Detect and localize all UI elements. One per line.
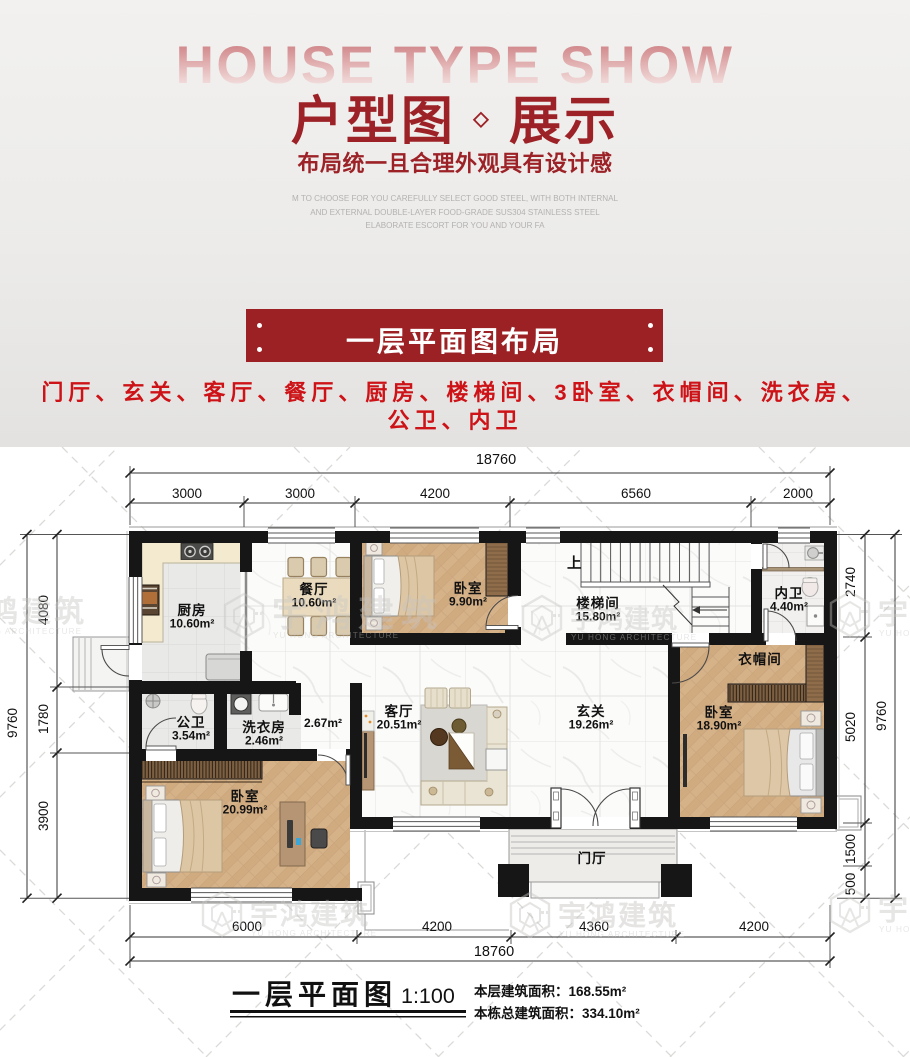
- svg-text:4200: 4200: [422, 919, 452, 934]
- svg-text:10.60m²: 10.60m²: [170, 617, 215, 631]
- svg-text:1780: 1780: [36, 704, 51, 734]
- svg-text:1:100: 1:100: [401, 984, 455, 1008]
- svg-text:宇鸿建筑: 宇鸿建筑: [570, 604, 678, 634]
- svg-text:YU HONG ARCHITECTURE: YU HONG ARCHITECTURE: [879, 629, 910, 638]
- svg-text:宇鸿建筑: 宇鸿建筑: [878, 893, 910, 927]
- svg-text:3000: 3000: [285, 486, 315, 501]
- svg-text:衣帽间: 衣帽间: [738, 651, 782, 667]
- svg-text:宇鸿建筑: 宇鸿建筑: [272, 593, 444, 634]
- svg-text:YU HONG ARCHITECTURE: YU HONG ARCHITECTURE: [879, 925, 910, 934]
- svg-text:3000: 3000: [172, 486, 202, 501]
- svg-text:宇鸿建筑: 宇鸿建筑: [250, 899, 370, 930]
- svg-text:YU HONG ARCHITECTURE: YU HONG ARCHITECTURE: [251, 929, 377, 938]
- svg-text:3900: 3900: [36, 801, 51, 831]
- svg-text:9760: 9760: [5, 708, 20, 738]
- svg-text:YU HONG ARCHITECTURE: YU HONG ARCHITECTURE: [273, 631, 399, 640]
- svg-text:本栋总建筑面积：334.10m²: 本栋总建筑面积：334.10m²: [474, 1005, 640, 1021]
- svg-text:宇鸿建筑: 宇鸿建筑: [0, 595, 87, 629]
- svg-text:4.40m²: 4.40m²: [770, 600, 808, 614]
- svg-text:9.90m²: 9.90m²: [449, 595, 487, 609]
- svg-text:一层平面图: 一层平面图: [232, 979, 397, 1010]
- svg-text:宇鸿建筑: 宇鸿建筑: [558, 900, 678, 931]
- svg-text:1500: 1500: [843, 834, 858, 864]
- svg-text:2.67m²: 2.67m²: [304, 716, 342, 730]
- svg-text:3.54m²: 3.54m²: [172, 729, 210, 743]
- svg-text:本层建筑面积：168.55m²: 本层建筑面积：168.55m²: [474, 983, 627, 999]
- svg-text:19.26m²: 19.26m²: [569, 718, 614, 732]
- svg-text:上: 上: [567, 555, 582, 572]
- svg-text:门厅: 门厅: [578, 850, 607, 866]
- svg-text:YU HONG ARCHITECTURE: YU HONG ARCHITECTURE: [559, 930, 685, 939]
- svg-text:2000: 2000: [783, 486, 813, 501]
- svg-text:YU HONG ARCHITECTURE: YU HONG ARCHITECTURE: [571, 633, 697, 642]
- svg-text:20.99m²: 20.99m²: [223, 803, 268, 817]
- svg-text:18.90m²: 18.90m²: [697, 719, 742, 733]
- svg-text:4200: 4200: [739, 919, 769, 934]
- svg-text:5020: 5020: [843, 712, 858, 742]
- svg-text:4200: 4200: [420, 486, 450, 501]
- svg-text:2.46m²: 2.46m²: [245, 734, 283, 748]
- svg-text:宇鸿建筑: 宇鸿建筑: [878, 597, 910, 631]
- svg-text:20.51m²: 20.51m²: [377, 718, 422, 732]
- svg-text:18760: 18760: [474, 944, 514, 960]
- svg-text:6560: 6560: [621, 486, 651, 501]
- svg-text:18760: 18760: [476, 452, 516, 468]
- svg-text:YU HONG ARCHITECTURE: YU HONG ARCHITECTURE: [0, 627, 82, 636]
- svg-text:9760: 9760: [874, 701, 889, 731]
